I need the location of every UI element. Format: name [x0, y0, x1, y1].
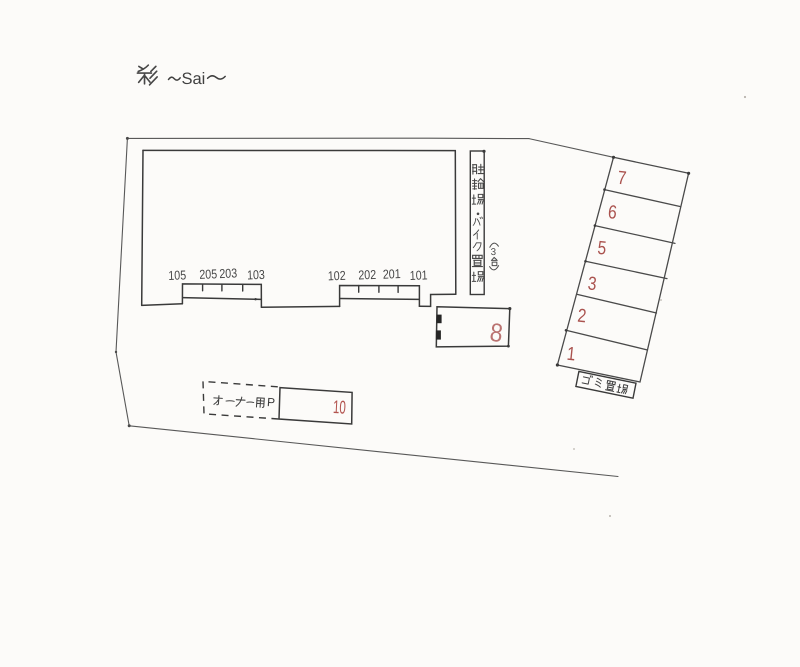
svg-text:205: 205 [199, 266, 217, 282]
svg-text:201: 201 [383, 266, 401, 282]
svg-text:3: 3 [491, 247, 497, 258]
svg-text:102: 102 [328, 268, 346, 284]
svg-text:P: P [267, 395, 276, 410]
svg-text:Sai: Sai [182, 70, 206, 88]
svg-text:101: 101 [409, 267, 427, 283]
svg-text:10: 10 [333, 396, 347, 418]
svg-text:103: 103 [247, 267, 265, 283]
svg-text:203: 203 [219, 265, 237, 281]
svg-text:202: 202 [358, 267, 376, 283]
svg-text:105: 105 [168, 267, 186, 283]
